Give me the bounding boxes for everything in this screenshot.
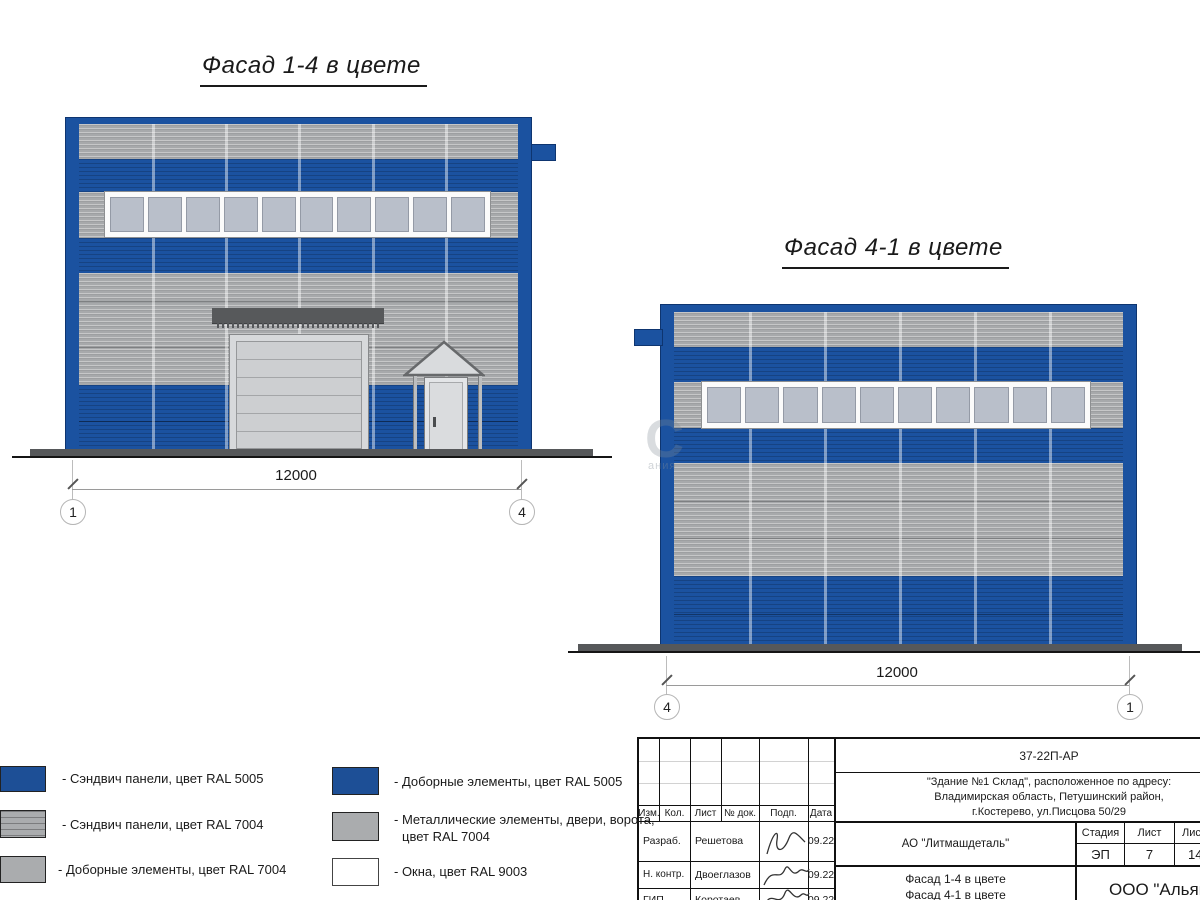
gate-canopy-fringe (217, 323, 379, 328)
col-header-list: Лист (690, 805, 721, 821)
sheets-label: Листов (1182, 823, 1200, 843)
door-handle (433, 417, 436, 427)
window-pane (1013, 387, 1047, 423)
ground-line (568, 651, 1200, 653)
col-header-data: Дата (808, 805, 834, 821)
legend-swatch-ral5005-trim (332, 767, 379, 795)
date-cell: 09.22 (808, 888, 834, 900)
panel-joint (372, 124, 375, 456)
axis-marker: 1 (1117, 694, 1143, 720)
legend-label: - Металлические элементы, двери, ворота, (394, 812, 655, 827)
panel-joint (225, 124, 228, 456)
project-address: "Здание №1 Склад", расположенное по адре… (836, 775, 1200, 821)
window-pane (413, 197, 447, 232)
canopy-post (478, 376, 482, 456)
stage-label: Стадия (1077, 823, 1124, 843)
legend-label: цвет RAL 7004 (402, 829, 490, 844)
gate-panels (236, 341, 362, 449)
window-pane (375, 197, 409, 232)
dimension-tick (516, 478, 527, 489)
panel-joint (899, 312, 902, 651)
grid-line (1174, 821, 1175, 865)
dimension-tick (1124, 674, 1135, 685)
legend-swatch-ral7004-trim (0, 856, 46, 883)
role-cell: Н. контр. (643, 861, 690, 888)
window-pane (1051, 387, 1085, 423)
panel-joint (824, 312, 827, 651)
window-pane (707, 387, 741, 423)
canopy-post (413, 376, 417, 456)
window-pane (300, 197, 334, 232)
window-pane (110, 197, 144, 232)
address-line: г.Костерево, ул.Писцова 50/29 (836, 805, 1200, 820)
window-pane (148, 197, 182, 232)
sectional-gate (229, 334, 369, 456)
col-header-podp: Подп. (759, 805, 808, 821)
date-cell: 09.22 (808, 861, 834, 888)
scupper-drain (634, 329, 663, 346)
legend-label: - Сэндвич панели, цвет RAL 7004 (62, 817, 264, 832)
legend-label: - Сэндвич панели, цвет RAL 5005 (62, 771, 264, 786)
grid-line (639, 783, 834, 784)
panel-joint (152, 124, 155, 456)
gate-canopy (212, 308, 384, 324)
door-leaf (429, 382, 463, 451)
window-pane (860, 387, 894, 423)
axis-marker: 4 (509, 499, 535, 525)
window-pane (974, 387, 1008, 423)
grid-line (639, 761, 834, 762)
scupper-drain (531, 144, 556, 161)
title-block: Изм. Кол. Лист № док. Подп. Дата Разраб.… (637, 737, 1200, 900)
doc-code: 37-22П-АР (836, 739, 1200, 772)
sheet-subject: Фасад 1-4 в цвете Фасад 4-1 в цвете (836, 871, 1075, 900)
role-cell: Разраб. (643, 821, 690, 861)
legend-swatch-ral9003 (332, 858, 379, 886)
facade-1-4-title: Фасад 1-4 в цвете (200, 52, 427, 87)
subject-line: Фасад 1-4 в цвете (836, 871, 1075, 887)
window-ribbon (104, 191, 491, 238)
role-cell: ГИП (643, 888, 690, 900)
window-pane (898, 387, 932, 423)
watermark-subtext: ания (648, 460, 676, 472)
window-pane (451, 197, 485, 232)
name-cell: Решетова (695, 821, 759, 861)
drawing-sheet: Фасад 1-4 в цвете Фасад 4-1 в цвете (0, 0, 1200, 900)
window-pane (337, 197, 371, 232)
legend-label: - Доборные элементы, цвет RAL 7004 (58, 862, 286, 877)
dimension-value: 12000 (246, 467, 346, 484)
panel-joint (974, 312, 977, 651)
grid-line (834, 772, 1200, 773)
dimension-value: 12000 (847, 664, 947, 681)
subject-line: Фасад 4-1 в цвете (836, 887, 1075, 900)
window-pane (822, 387, 856, 423)
dimension-tick (67, 478, 78, 489)
dimension-line (666, 685, 1129, 686)
legend-swatch-ral7004-panels (0, 810, 46, 838)
col-header-ndok: № док. (721, 805, 759, 821)
legend-swatch-ral7004-metal (332, 812, 379, 841)
signature-icon (763, 824, 809, 860)
stage-value: ЭП (1077, 844, 1124, 865)
entrance-door (424, 377, 468, 456)
signature-icon (761, 885, 811, 900)
window-pane (224, 197, 258, 232)
legend-label: - Доборные элементы, цвет RAL 5005 (394, 774, 622, 789)
address-line: Владимирская область, Петушинский район, (836, 790, 1200, 805)
facade-1-4-elevation (65, 117, 532, 457)
facade-4-1-title: Фасад 4-1 в цвете (782, 234, 1009, 269)
sheets-total: 14 (1188, 844, 1200, 865)
dimension-line (72, 489, 521, 490)
dimension-tick (661, 674, 672, 685)
client-name: АО "Литмашдеталь" (836, 823, 1075, 865)
window-pane (186, 197, 220, 232)
design-company: ООО "Альянс (1109, 867, 1200, 900)
name-cell: Двоеглазов (695, 861, 759, 888)
col-header-kol: Кол. (659, 805, 690, 821)
window-ribbon (701, 381, 1091, 429)
window-pane (783, 387, 817, 423)
panel-joint (1049, 312, 1052, 651)
facade-4-1-elevation (660, 304, 1137, 652)
address-line: "Здание №1 Склад", расположенное по адре… (836, 775, 1200, 790)
window-pane (745, 387, 779, 423)
date-cell: 09.22 (808, 821, 834, 861)
name-cell: Коротаев (695, 888, 759, 900)
door-gable-canopy (403, 340, 485, 377)
sheet-label: Лист (1125, 823, 1174, 843)
axis-marker: 4 (654, 694, 680, 720)
sheet-number: 7 (1125, 844, 1174, 865)
legend-label: - Окна, цвет RAL 9003 (394, 864, 527, 879)
window-pane (936, 387, 970, 423)
axis-marker: 1 (60, 499, 86, 525)
panel-joint (749, 312, 752, 651)
ground-line (12, 456, 612, 458)
col-header-izm: Изм. (639, 805, 659, 821)
legend-swatch-ral5005 (0, 766, 46, 792)
window-pane (262, 197, 296, 232)
